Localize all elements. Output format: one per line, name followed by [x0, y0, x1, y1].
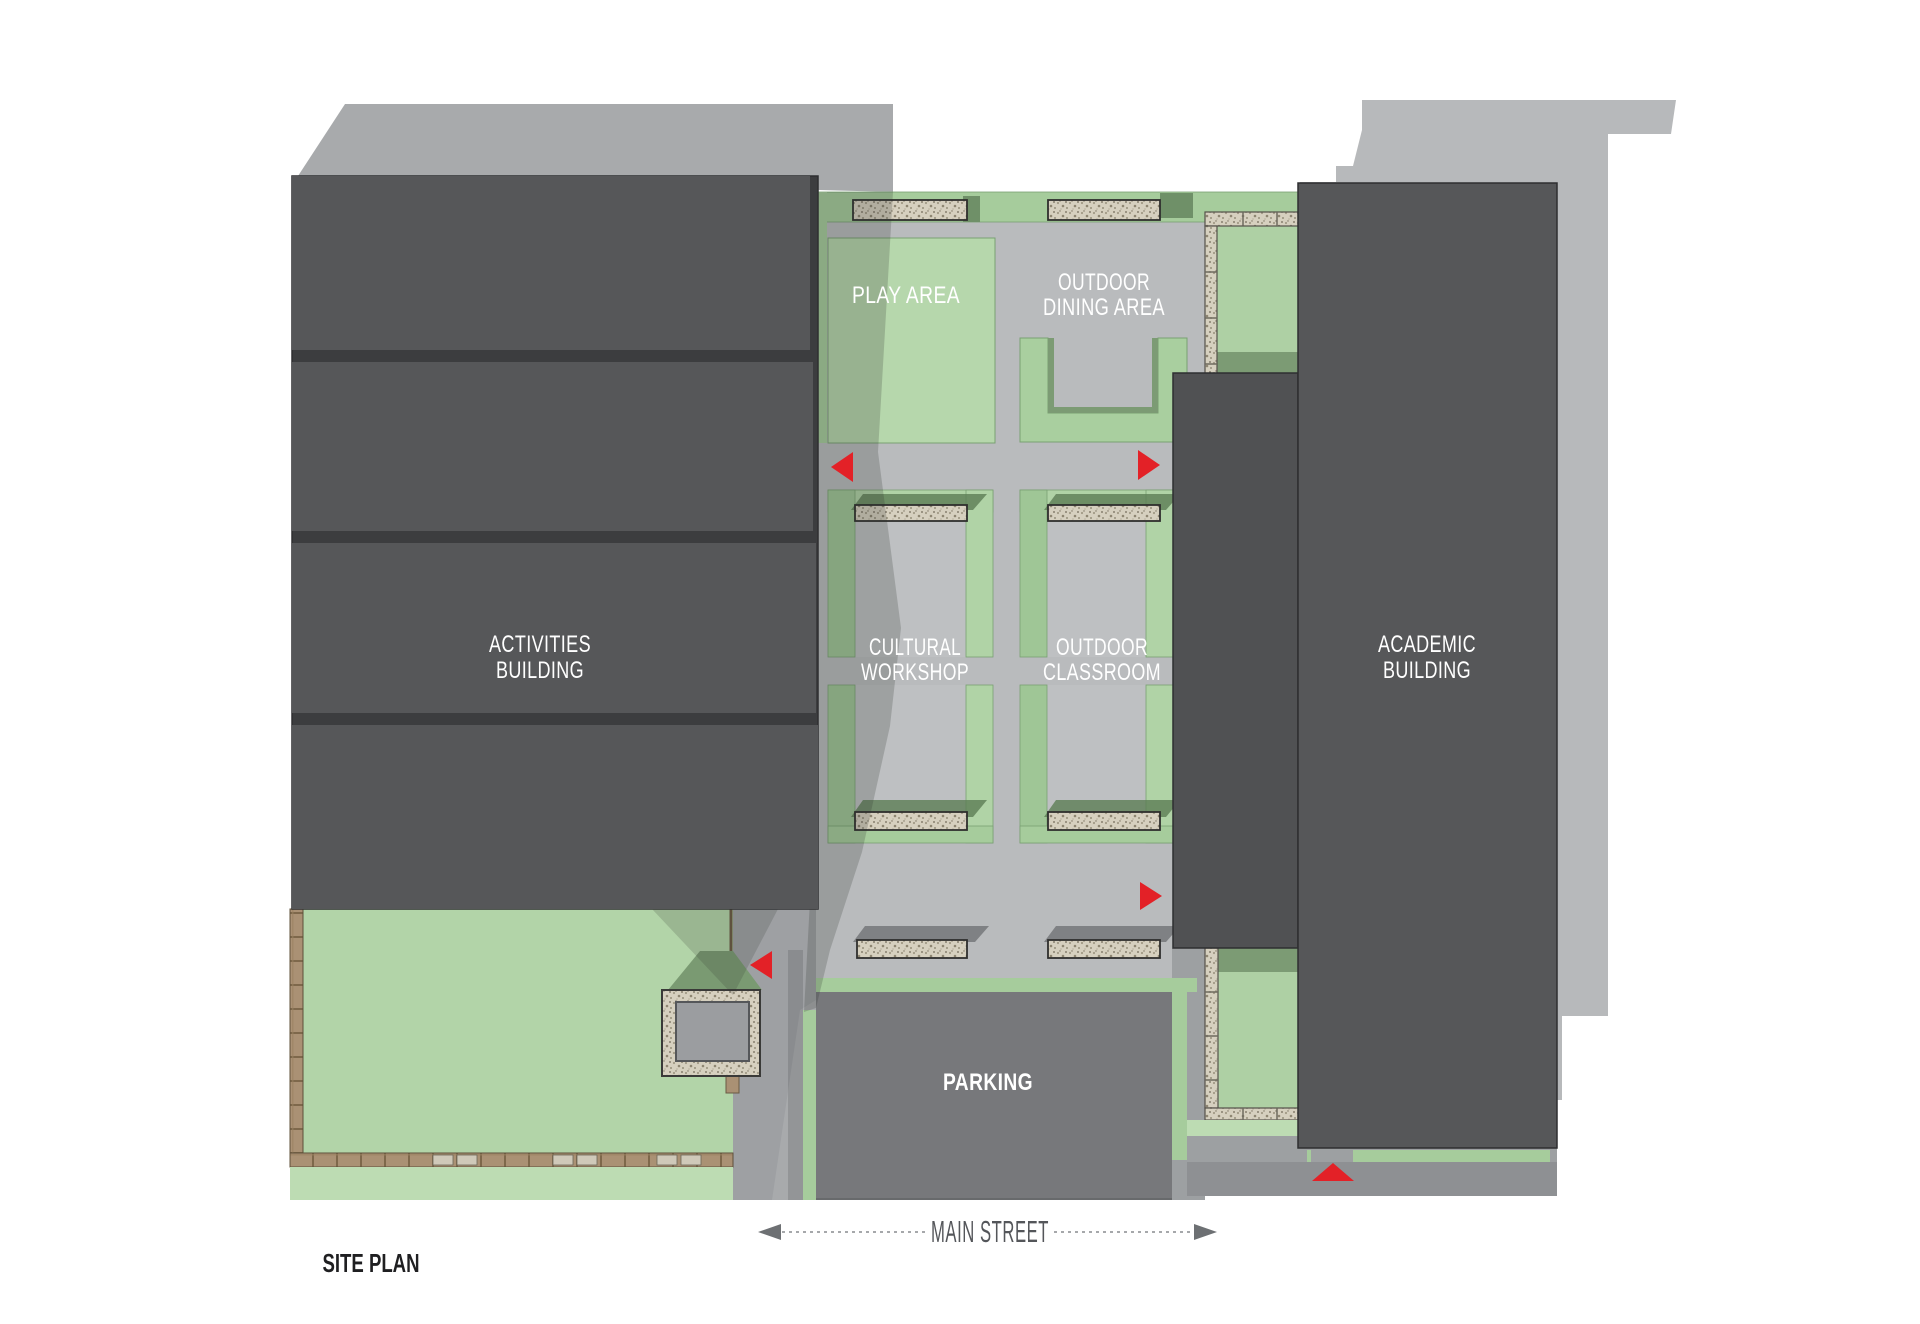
parking-label: PARKING — [943, 1069, 1033, 1096]
academic-annex-building — [1173, 373, 1298, 948]
main-street-label: MAIN STREET — [931, 1214, 1049, 1249]
dining-area-label-line2: DINING AREA — [1043, 294, 1165, 321]
activities-building-label-line2: BUILDING — [496, 657, 584, 684]
lawn-wood-border-west — [290, 909, 303, 1167]
street-sidewalk — [1187, 1162, 1557, 1196]
parking-west-shade — [788, 950, 803, 1200]
parking-green-strip-west — [803, 1010, 816, 1200]
academic-south-entry-gap — [1311, 1150, 1353, 1162]
dining-area-label-line1: OUTDOOR — [1058, 269, 1150, 296]
activities-building — [292, 176, 818, 909]
parking-green-strip-north — [816, 978, 1197, 992]
site-plan-drawing: ACTIVITIES BUILDING ACADEMIC BUILDING PL… — [0, 0, 1920, 1324]
drawing-title: SITE PLAN — [323, 1248, 420, 1278]
lawn-outer-green-strip — [290, 1167, 733, 1200]
parking-green-strip-east — [1172, 992, 1187, 1160]
academic-building-label-line2: BUILDING — [1383, 657, 1471, 684]
parking-lot — [816, 992, 1172, 1200]
academic-building-label-line1: ACADEMIC — [1378, 631, 1476, 658]
workshop-label-line2: WORKSHOP — [861, 659, 969, 686]
activities-building-label-line1: ACTIVITIES — [489, 631, 591, 658]
wood-border-stone-blocks — [433, 1155, 701, 1165]
classroom-label-line1: OUTDOOR — [1056, 634, 1148, 661]
workshop-label-line1: CULTURAL — [869, 634, 961, 661]
site-plan-page: ACTIVITIES BUILDING ACADEMIC BUILDING PL… — [0, 0, 1920, 1324]
northeast-garden — [1205, 212, 1302, 376]
classroom-label-line2: CLASSROOM — [1043, 659, 1161, 686]
play-area-label: PLAY AREA — [852, 282, 960, 309]
fence-post — [726, 1075, 739, 1093]
